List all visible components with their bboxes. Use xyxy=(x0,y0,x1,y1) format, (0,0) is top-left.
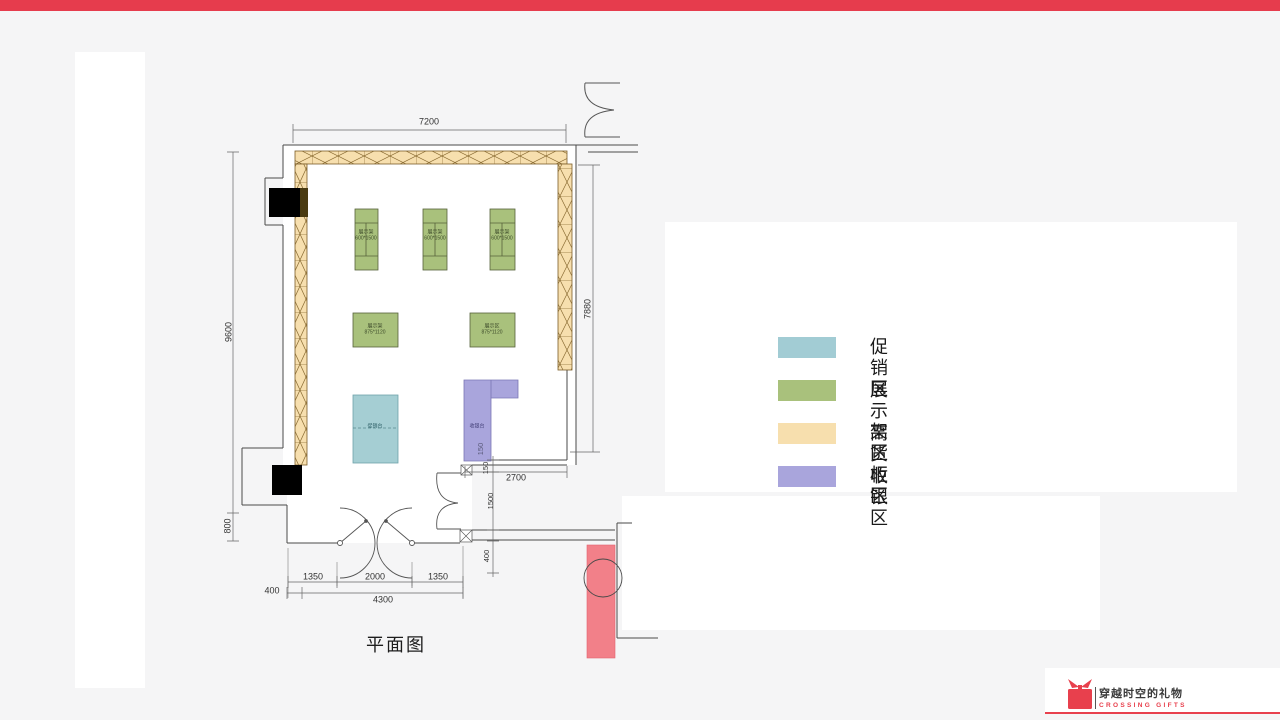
dim-opening-2700: 2700 xyxy=(506,474,526,483)
high-cabinet-swatch xyxy=(778,423,836,444)
dim-passage-1500: 1500 xyxy=(487,493,495,510)
rack-label: 展示架600*1500 xyxy=(424,231,445,242)
dim-door-left-1350: 1350 xyxy=(303,573,323,582)
logo-name: 穿越时空的礼物 xyxy=(1099,689,1183,700)
display-rack-swatch xyxy=(778,380,836,401)
cashier-swatch xyxy=(778,466,836,487)
dim-counter-depth: 150 xyxy=(477,443,485,456)
dim-left-height: 9600 xyxy=(225,322,234,342)
rack-label: 展示区875*1120 xyxy=(481,325,502,336)
logo-divider xyxy=(1095,687,1096,709)
logo-subtitle: CROSSING GIFTS xyxy=(1099,702,1187,709)
dim-right-height: 7880 xyxy=(584,299,593,319)
dim-left-bottom: 800 xyxy=(224,518,233,533)
dim-bottom-400: 400 xyxy=(264,587,279,596)
promo-table-label: 促销台 xyxy=(367,424,382,430)
plan-title: 平面图 xyxy=(366,631,426,657)
lower-white-panel xyxy=(622,496,1100,630)
room-interior xyxy=(283,145,576,543)
rack-label: 展示架600*1500 xyxy=(355,231,376,242)
dim-top-width: 7200 xyxy=(419,118,439,127)
dim-door-right-1350: 1350 xyxy=(428,573,448,582)
dim-door-2000: 2000 xyxy=(365,573,385,582)
promo-swatch xyxy=(778,337,836,358)
gift-box-icon xyxy=(1066,677,1094,710)
red-highlight-area xyxy=(584,545,622,658)
bottom-accent-line xyxy=(1045,712,1280,714)
rack-label: 展示架600*1500 xyxy=(491,231,512,242)
cashier-label: 收银台 xyxy=(469,424,484,430)
rack-label: 展示架875*1120 xyxy=(364,325,385,336)
top-entry-door xyxy=(585,83,620,137)
dim-gap-150: 150 xyxy=(482,462,490,475)
legend-card xyxy=(665,222,1237,492)
dim-bottom-4300: 4300 xyxy=(373,596,393,605)
dim-right-400: 400 xyxy=(483,550,491,563)
floor-plan-drawing xyxy=(0,0,680,720)
legend-label-cashier: 收银区 xyxy=(870,466,888,529)
